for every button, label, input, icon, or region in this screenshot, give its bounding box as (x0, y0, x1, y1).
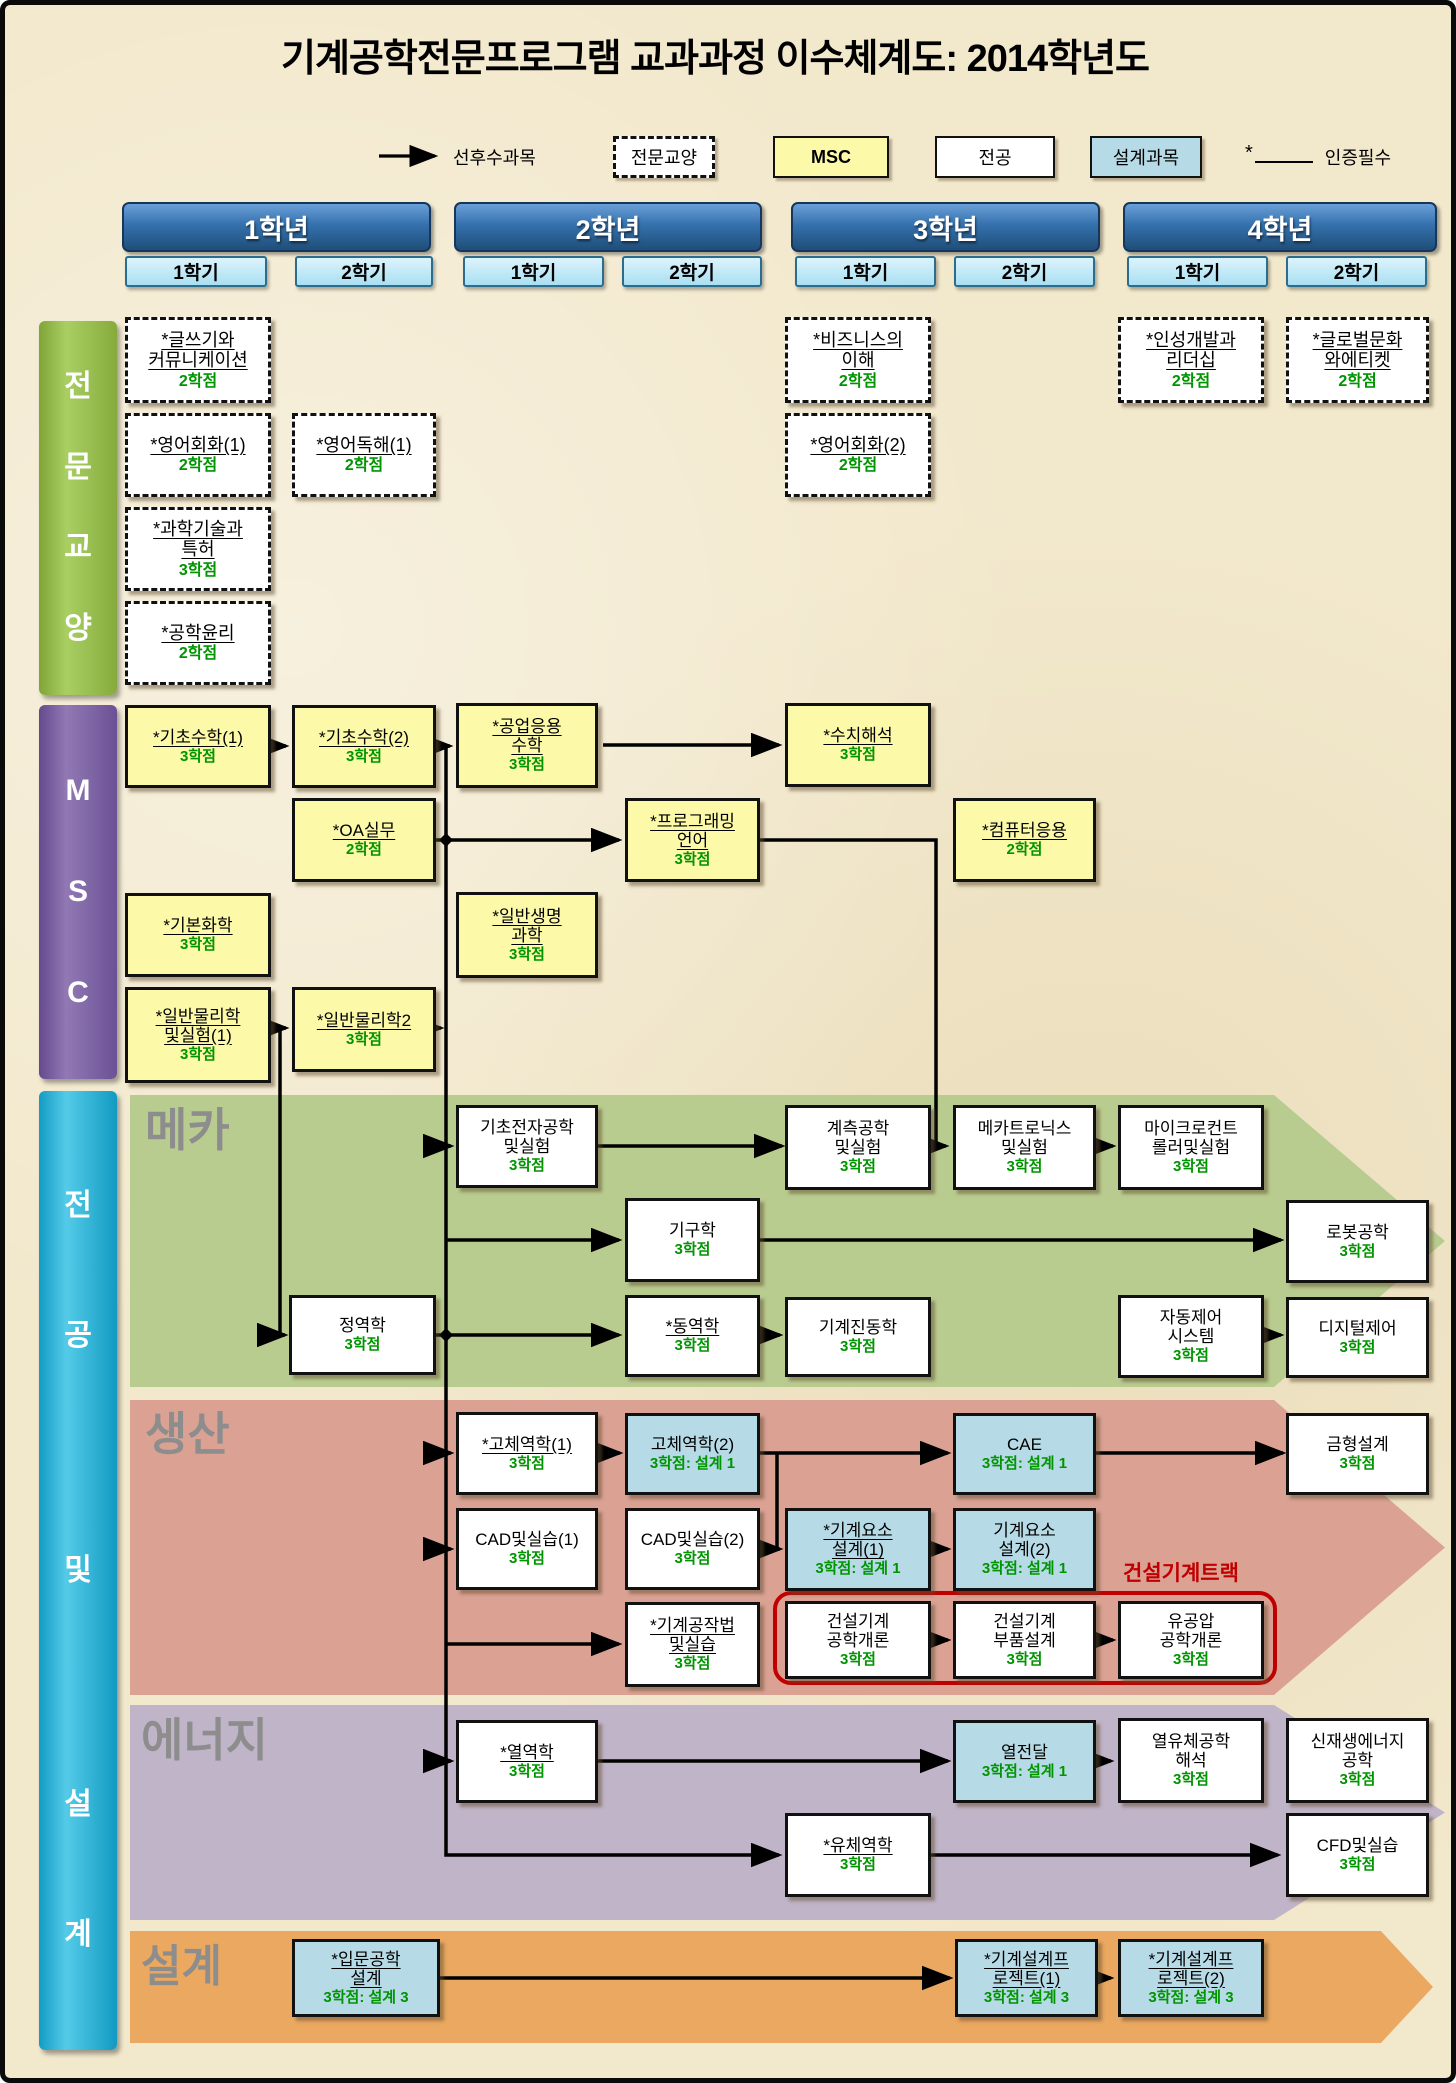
course-name: *일반물리학2 (317, 1011, 411, 1030)
course-name: CAD및실습(2) (641, 1530, 745, 1549)
course-robotics: 로봇공학3학점 (1286, 1200, 1429, 1283)
band-label-meca: 메카 (145, 1107, 230, 1153)
course-construction_parts: 건설기계 부품설계3학점 (953, 1601, 1096, 1679)
curriculum-diagram: 기계공학전문프로그램 교과과정 이수체계도: 2014학년도 선후수과목 전문교… (0, 0, 1456, 2083)
course-credit: 2학점 (346, 842, 382, 859)
course-name: 열유체공학 해석 (1152, 1732, 1230, 1770)
category-bar-msc: MSC (39, 705, 117, 1079)
course-name: *기계설계프 로젝트(1) (984, 1950, 1069, 1988)
semester-3-2: 2학기 (954, 256, 1095, 287)
course-credit: 3학점 (1007, 1652, 1043, 1669)
construction-track-label: 건설기계트랙 (1123, 1557, 1239, 1587)
course-credit: 3학점 (1340, 1772, 1376, 1789)
course-name: 기구학 (669, 1221, 716, 1240)
course-credit: 2학점 (839, 457, 877, 475)
course-credit: 3학점 (345, 1337, 381, 1354)
course-credit: 3학점 (180, 937, 216, 954)
course-credit: 3학점: 설계 1 (650, 1456, 735, 1473)
course-cae: CAE3학점: 설계 1 (953, 1413, 1096, 1495)
course-name: 유공압 공학개론 (1160, 1612, 1223, 1650)
course-microcontroller: 마이크로컨트 롤러및실험3학점 (1118, 1105, 1264, 1190)
course-name: 기초전자공학 및실험 (480, 1118, 574, 1156)
course-credit: 2학점 (179, 457, 217, 475)
legend-required-label: 인증필수 (1325, 144, 1391, 170)
course-english_conv1: *영어회화(1)2학점 (125, 413, 271, 497)
semester-4-2: 2학기 (1286, 256, 1427, 287)
course-credit: 3학점 (840, 1652, 876, 1669)
year-header-4: 4학년 (1123, 202, 1437, 252)
year-header-1: 1학년 (122, 202, 431, 252)
course-computer_app: *컴퓨터응용2학점 (953, 798, 1096, 882)
course-name: 기계진동학 (819, 1318, 897, 1337)
course-name: 디지털제어 (1318, 1319, 1396, 1338)
course-name: 고체역학(2) (651, 1435, 734, 1454)
course-credit: 3학점: 설계 3 (1148, 1990, 1233, 2007)
course-name: *기초수학(1) (153, 728, 243, 747)
course-sci_patent: *과학기술과 특허3학점 (125, 507, 271, 591)
course-credit: 3학점 (1340, 1340, 1376, 1357)
course-machine_elements1: *기계요소 설계(1)3학점: 설계 1 (785, 1508, 931, 1591)
legend-prerequisite-label: 선후수과목 (453, 136, 536, 178)
course-credit: 2학점 (179, 373, 217, 391)
band-label-energy: 에너지 (141, 1717, 268, 1763)
course-physics2: *일반물리학23학점 (292, 987, 436, 1072)
course-name: *기계요소 설계(1) (823, 1521, 892, 1559)
course-name: *입문공학 설계 (331, 1950, 400, 1988)
course-credit: 3학점 (675, 1242, 711, 1259)
course-name: 로봇공학 (1326, 1223, 1389, 1242)
course-physics1: *일반물리학 및실험(1)3학점 (125, 987, 271, 1083)
course-credit: 2학점 (1172, 373, 1210, 391)
course-name: *과학기술과 특허 (153, 519, 243, 560)
semester-4-1: 1학기 (1127, 256, 1268, 287)
course-name: 마이크로컨트 롤러및실험 (1144, 1119, 1238, 1157)
course-name: *OA실무 (333, 821, 395, 840)
course-credit: 3학점 (675, 1551, 711, 1568)
page-title: 기계공학전문프로그램 교과과정 이수체계도: 2014학년도 (5, 27, 1425, 82)
semester-2-2: 2학기 (622, 256, 762, 287)
course-credit: 3학점 (1340, 1244, 1376, 1261)
course-name: *글로벌문화 와에티켓 (1313, 330, 1403, 371)
course-credit: 3학점 (840, 1339, 876, 1356)
course-name: *기본화학 (163, 916, 232, 935)
course-dynamics: *동역학3학점 (625, 1295, 760, 1377)
course-name: CFD및실습 (1317, 1836, 1399, 1855)
course-credit: 3학점 (1340, 1857, 1376, 1874)
course-credit: 3학점 (1173, 1159, 1209, 1176)
course-name: *영어독해(1) (316, 435, 411, 455)
course-name: *동역학 (666, 1317, 720, 1336)
course-credit: 3학점 (509, 947, 545, 964)
course-name: *공학윤리 (161, 623, 234, 643)
course-credit: 3학점 (1340, 1456, 1376, 1473)
course-credit: 3학점 (180, 1047, 216, 1064)
year-header-2: 2학년 (454, 202, 762, 252)
course-name: *수치해석 (823, 726, 892, 745)
course-numerical: *수치해석3학점 (785, 703, 931, 787)
course-credit: 2학점 (1338, 373, 1376, 391)
category-bar-general: 전문교양 (39, 321, 117, 695)
course-math1: *기초수학(1)3학점 (125, 705, 271, 788)
course-leadership: *인성개발과 리더십2학점 (1118, 317, 1264, 403)
course-name: *고체역학(1) (482, 1435, 572, 1454)
course-cad2: CAD및실습(2)3학점 (625, 1508, 760, 1590)
course-digital_control: 디지털제어3학점 (1286, 1297, 1429, 1378)
course-ethics: *공학윤리2학점 (125, 601, 271, 685)
course-credit: 2학점 (179, 645, 217, 663)
course-name: *기초수학(2) (319, 728, 409, 747)
course-name: *영어회화(1) (150, 435, 245, 455)
legend-major-box: 전공 (935, 136, 1055, 178)
course-name: 신재생에너지 공학 (1311, 1732, 1405, 1770)
course-machining: *기계공작법 및실습3학점 (625, 1602, 760, 1687)
course-project1: *기계설계프 로젝트(1)3학점: 설계 3 (955, 1939, 1098, 2017)
course-name: *영어회화(2) (810, 435, 905, 455)
course-credit: 3학점: 설계 1 (815, 1561, 900, 1578)
course-name: *비즈니스의 이해 (813, 330, 903, 371)
course-name: CAE (1007, 1435, 1042, 1454)
required-underline (1255, 151, 1313, 163)
course-name: CAD및실습(1) (475, 1530, 579, 1549)
course-global_culture: *글로벌문화 와에티켓2학점 (1286, 317, 1429, 403)
course-name: *프로그래밍 언어 (650, 812, 735, 850)
course-credit: 3학점: 설계 1 (982, 1764, 1067, 1781)
course-instrumentation: 계측공학 및실험3학점 (785, 1105, 931, 1190)
course-credit: 3학점 (509, 1158, 545, 1175)
course-credit: 3학점 (509, 1764, 545, 1781)
course-credit: 2학점 (839, 373, 877, 391)
course-oa: *OA실무2학점 (292, 798, 436, 882)
course-business: *비즈니스의 이해2학점 (785, 317, 931, 403)
course-credit: 3학점 (840, 1159, 876, 1176)
course-credit: 3학점 (675, 852, 711, 869)
course-name: *기계설계프 로젝트(2) (1149, 1950, 1234, 1988)
legend-required: * 인증필수 (1245, 136, 1391, 178)
course-credit: 3학점: 설계 1 (982, 1561, 1067, 1578)
course-renewable: 신재생에너지 공학3학점 (1286, 1718, 1429, 1803)
course-name: 금형설계 (1326, 1435, 1389, 1454)
semester-1-2: 2학기 (295, 256, 433, 287)
course-name: *유체역학 (823, 1836, 892, 1855)
course-name: *기계공작법 및실습 (650, 1616, 735, 1654)
course-credit: 3학점 (675, 1338, 711, 1355)
course-machine_elements2: 기계요소 설계(2)3학점: 설계 1 (953, 1508, 1096, 1591)
course-credit: 3학점 (675, 1656, 711, 1673)
course-biology: *일반생명 과학3학점 (456, 892, 598, 978)
course-credit: 3학점 (1007, 1159, 1043, 1176)
year-header-3: 3학년 (791, 202, 1100, 252)
course-credit: 3학점 (1173, 1348, 1209, 1365)
course-statics: 정역학3학점 (289, 1295, 436, 1375)
course-credit: 3학점 (1173, 1772, 1209, 1789)
course-name: 계측공학 및실험 (827, 1119, 890, 1157)
course-mechatronics: 메카트로닉스 및실험3학점 (953, 1105, 1096, 1190)
course-credit: 2학점 (345, 457, 383, 475)
course-heat_transfer: 열전달3학점: 설계 1 (953, 1720, 1096, 1803)
course-solid2: 고체역학(2)3학점: 설계 1 (625, 1413, 760, 1495)
course-english_read1: *영어독해(1)2학점 (292, 413, 436, 497)
course-credit: 3학점 (180, 749, 216, 766)
course-name: 정역학 (339, 1316, 386, 1335)
course-english_conv2: *영어회화(2)2학점 (785, 413, 931, 497)
course-credit: 2학점 (1007, 842, 1043, 859)
course-thermal_fluid: 열유체공학 해석3학점 (1118, 1718, 1264, 1803)
course-credit: 3학점: 설계 3 (984, 1990, 1069, 2007)
course-chemistry: *기본화학3학점 (125, 893, 271, 977)
course-name: 자동제어 시스템 (1160, 1308, 1223, 1346)
course-hydraulics: 유공압 공학개론3학점 (1118, 1601, 1264, 1679)
band-label-design: 설계 (141, 1945, 222, 1989)
course-name: *공업응용 수학 (492, 717, 561, 755)
course-name: *열역학 (500, 1743, 554, 1762)
semester-2-1: 1학기 (463, 256, 604, 287)
legend-general-box: 전문교양 (613, 136, 715, 178)
course-eng_math: *공업응용 수학3학점 (456, 703, 598, 788)
course-auto_control: 자동제어 시스템3학점 (1118, 1295, 1264, 1378)
course-math2: *기초수학(2)3학점 (292, 705, 436, 788)
course-name: 열전달 (1001, 1743, 1048, 1762)
legend-design-box: 설계과목 (1090, 136, 1202, 178)
band-label-prod: 생산 (145, 1411, 230, 1457)
course-credit: 3학점 (509, 1551, 545, 1568)
course-name: *일반물리학 및실험(1) (156, 1007, 241, 1045)
course-solid1: *고체역학(1)3학점 (456, 1412, 598, 1495)
junction-oa (439, 833, 453, 847)
course-intro_design: *입문공학 설계3학점: 설계 3 (292, 1939, 440, 2017)
course-cad1: CAD및실습(1)3학점 (456, 1508, 598, 1590)
course-cfd: CFD및실습3학점 (1286, 1813, 1429, 1897)
course-credit: 3학점 (509, 757, 545, 774)
course-credit: 3학점 (1173, 1652, 1209, 1669)
course-credit: 3학점: 설계 1 (982, 1456, 1067, 1473)
category-bar-major-design: 전공및설계 (39, 1091, 117, 2050)
course-name: *일반생명 과학 (492, 907, 561, 945)
course-thermodynamics: *열역학3학점 (456, 1720, 598, 1803)
semester-3-1: 1학기 (795, 256, 936, 287)
course-programming: *프로그래밍 언어3학점 (625, 798, 760, 882)
course-name: 건설기계 공학개론 (827, 1612, 890, 1650)
course-credit: 3학점 (509, 1456, 545, 1473)
required-star-mark: * (1245, 142, 1253, 165)
course-credit: 3학점 (840, 1857, 876, 1874)
course-name: 기계요소 설계(2) (993, 1521, 1056, 1559)
course-credit: 3학점 (346, 749, 382, 766)
prerequisite-arrow-icon (377, 141, 457, 171)
course-mold: 금형설계3학점 (1286, 1413, 1429, 1495)
semester-1-1: 1학기 (125, 256, 267, 287)
course-name: *글쓰기와 커뮤니케이션 (148, 330, 247, 371)
course-credit: 3학점 (840, 747, 876, 764)
course-construction_intro: 건설기계 공학개론3학점 (785, 1601, 931, 1679)
course-name: 건설기계 부품설계 (993, 1612, 1056, 1650)
course-name: *인성개발과 리더십 (1146, 330, 1236, 371)
legend-msc-box: MSC (773, 136, 889, 178)
course-fluid: *유체역학3학점 (785, 1813, 931, 1897)
course-name: 메카트로닉스 및실험 (978, 1119, 1072, 1157)
course-electronics: 기초전자공학 및실험3학점 (456, 1105, 598, 1188)
course-credit: 3학점 (346, 1032, 382, 1049)
course-vibration: 기계진동학3학점 (785, 1297, 931, 1377)
course-credit: 3학점: 설계 3 (323, 1990, 408, 2007)
course-kinematics: 기구학3학점 (625, 1198, 760, 1282)
course-project2: *기계설계프 로젝트(2)3학점: 설계 3 (1118, 1939, 1264, 2017)
course-credit: 3학점 (179, 562, 217, 580)
course-writing: *글쓰기와 커뮤니케이션2학점 (125, 317, 271, 403)
course-name: *컴퓨터응용 (982, 821, 1067, 840)
